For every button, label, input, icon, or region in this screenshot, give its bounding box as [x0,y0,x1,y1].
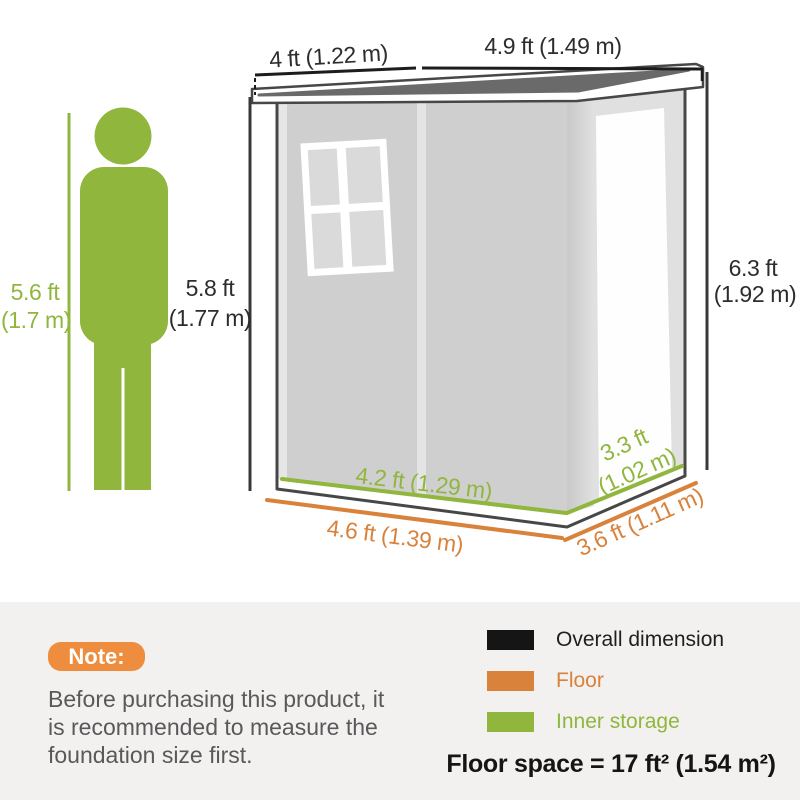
note-badge: Note: [48,642,145,671]
legend-label-inner-storage: Inner storage [556,710,680,734]
note-line-2: is recommended to measure the [48,713,384,741]
window-pane-br [349,210,386,267]
diagram-area: 5.6 ft (1.7 m) 5.8 ft (1.77 m) 6.3 ft (1… [0,0,800,602]
window [300,139,393,277]
front-wall-left-highlight [278,104,287,481]
inner-storage-swatch [487,712,534,732]
window-pane-bl [311,212,343,269]
note-badge-label: Note: [68,644,124,670]
person-leg-divider [122,368,125,490]
roof-right-width-label: 4.9 ft (1.49 m) [484,33,621,59]
note-line-3: foundation size first. [48,741,384,769]
front-wall-seam [417,101,426,496]
rear-height-label-ft: 6.3 ft [729,255,779,281]
legend-label-floor: Floor [556,669,604,693]
info-panel: Note: Before purchasing this product, it… [0,602,800,800]
shed-dimension-diagram: 5.6 ft (1.7 m) 5.8 ft (1.77 m) 6.3 ft (1… [0,0,800,800]
floor-space-summary: Floor space = 17 ft² (1.54 m²) [436,750,786,779]
person-head [95,108,152,165]
note-line-1: Before purchasing this product, it [48,685,384,713]
person-torso [80,167,168,345]
person-height-label-ft: 5.6 ft [11,279,61,305]
window-pane-tr [346,146,383,204]
person-height-label-m: (1.7 m) [1,307,71,333]
note-text: Before purchasing this product, it is re… [48,685,384,769]
legend-row-floor: Floor [487,670,604,691]
overall-dimension-swatch [487,630,534,650]
rear-height-label-m: (1.92 m) [714,281,796,307]
legend-row-overall: Overall dimension [487,629,724,650]
floor-swatch [487,671,534,691]
shed-diagram-svg: 5.6 ft (1.7 m) 5.8 ft (1.77 m) 6.3 ft (1… [0,0,800,602]
legend-label-overall: Overall dimension [556,628,724,652]
corner-shading [567,94,594,513]
legend-row-inner-storage: Inner storage [487,711,680,732]
roof-left-width-label: 4 ft (1.22 m) [268,39,388,72]
front-height-label-m: (1.77 m) [169,305,251,331]
window-pane-tl [308,148,340,206]
human-figure [69,108,168,492]
roof-right-dim-line [422,68,702,69]
front-height-label-ft: 5.8 ft [186,275,236,301]
